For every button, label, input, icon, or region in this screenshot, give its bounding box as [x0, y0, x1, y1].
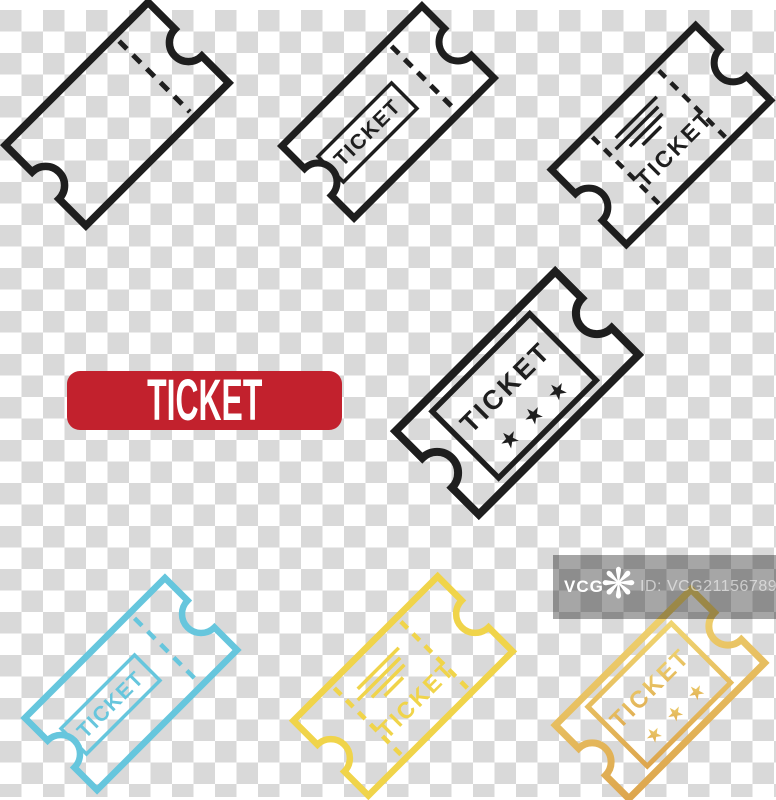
stock-image-canvas: TICKET TICKET TICKET TICKET ★ ★ ★ TICKET	[0, 0, 776, 800]
watermark-id-text: ID: VCG211567896214	[640, 578, 776, 596]
text-line-2	[358, 658, 400, 700]
ticket-label: TICKET	[605, 643, 696, 734]
star-icon: ★	[642, 722, 667, 747]
text-line-2	[616, 107, 658, 149]
pinwheel-asterisk-icon: ❋	[601, 563, 636, 605]
star-icon: ★	[684, 680, 709, 705]
star-icon: ★	[520, 401, 548, 429]
star-icon: ★	[496, 426, 524, 454]
star-icon: ★	[663, 701, 688, 726]
star-icon: ★	[544, 377, 572, 405]
ticket-button: TICKET	[67, 371, 342, 430]
ticket-stub-dashed-line	[119, 41, 190, 112]
watermark-brand: VCG	[564, 577, 604, 597]
ticket-button-label: TICKET	[147, 372, 262, 430]
watermark-bar: VCG ❋ ID: VCG211567896214	[553, 555, 776, 619]
